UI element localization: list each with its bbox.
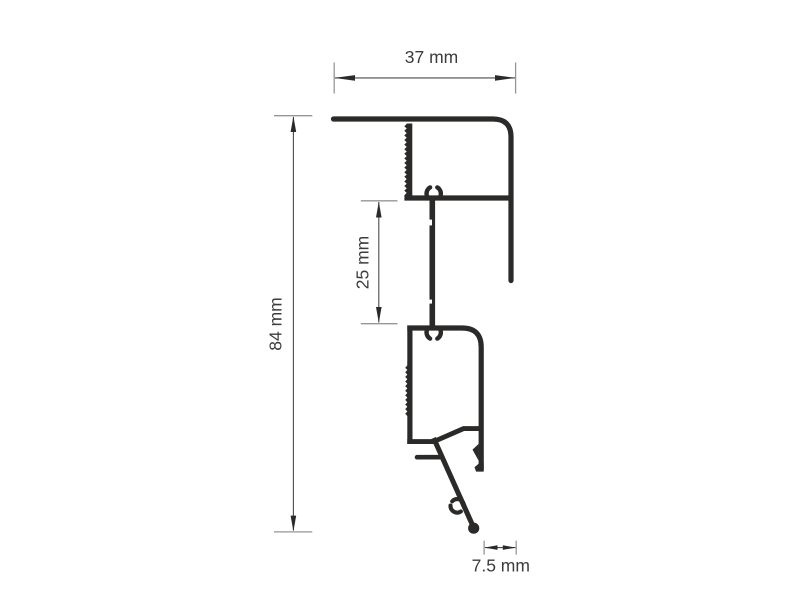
svg-text:37 mm: 37 mm xyxy=(405,47,458,67)
svg-text:25 mm: 25 mm xyxy=(353,236,373,289)
svg-text:7.5 mm: 7.5 mm xyxy=(472,556,530,576)
svg-text:84 mm: 84 mm xyxy=(266,297,286,350)
